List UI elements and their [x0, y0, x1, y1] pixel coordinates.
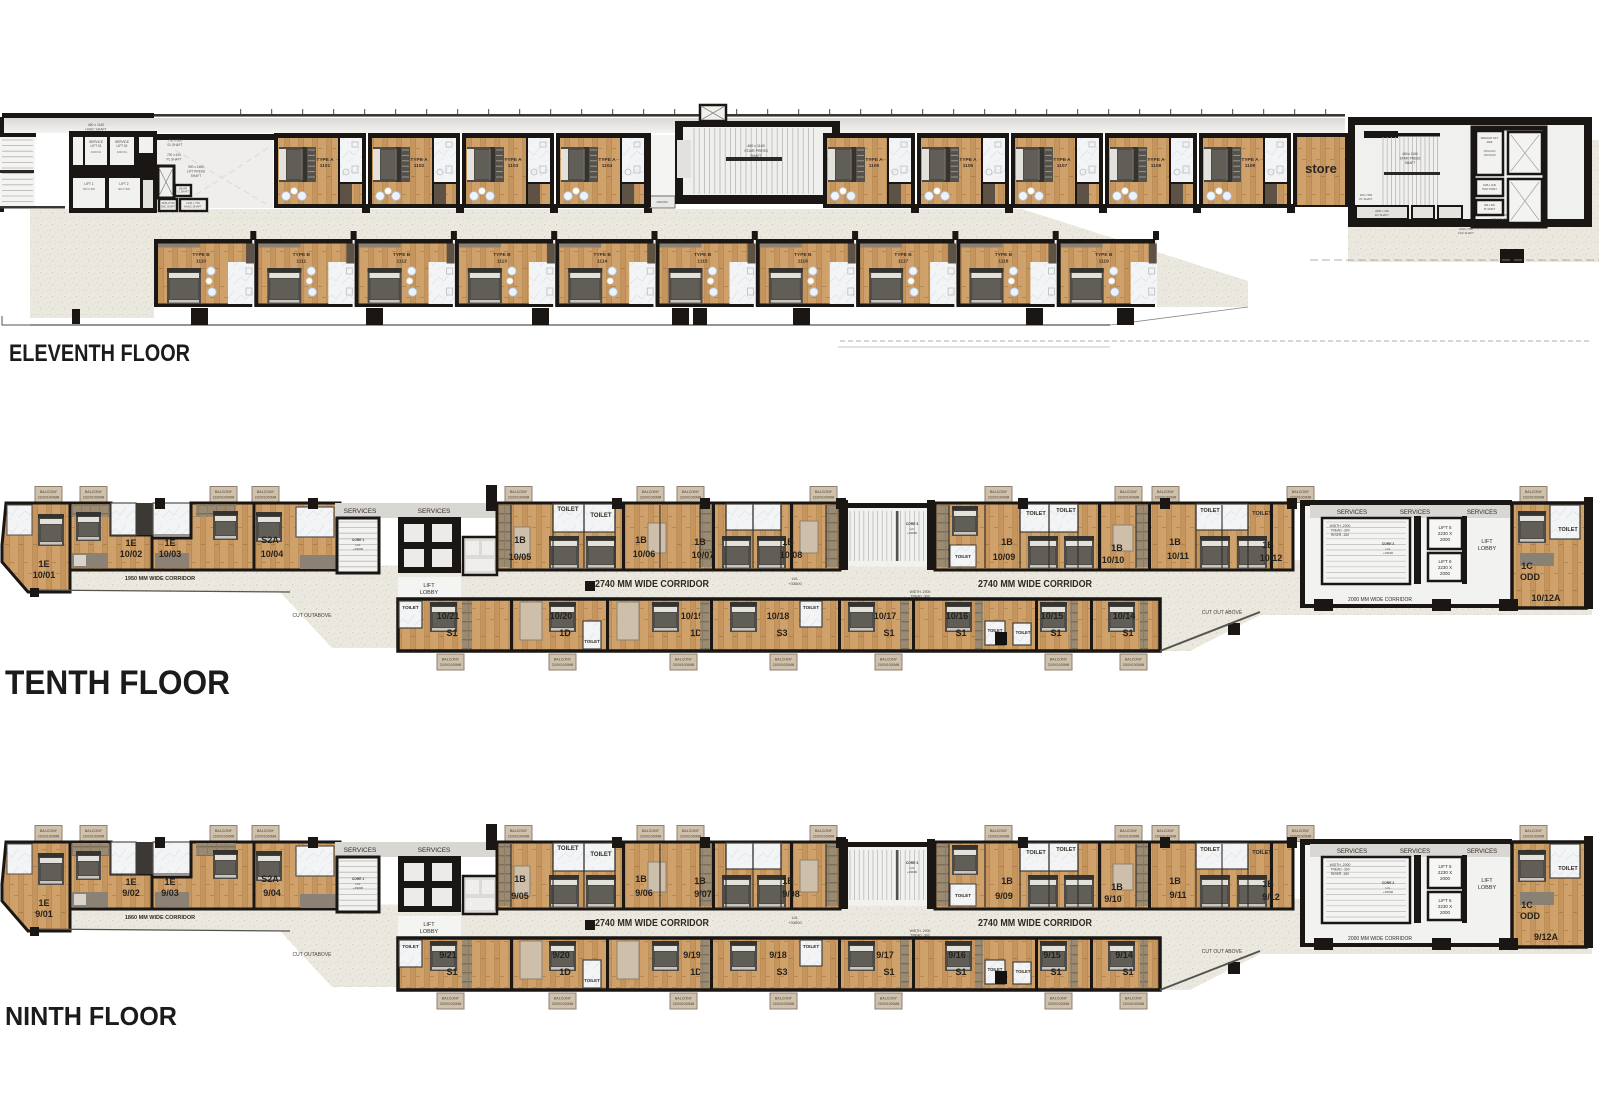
svg-text:1C: 1C	[1521, 561, 1533, 571]
svg-text:2100X1000MM: 2100X1000MM	[38, 835, 60, 839]
svg-text:2100X1000MM: 2100X1000MM	[1118, 496, 1140, 500]
svg-text:TOILET: TOILET	[1026, 511, 1046, 517]
svg-text:S1: S1	[883, 967, 894, 977]
svg-text:10/21: 10/21	[437, 611, 460, 621]
svg-text:BALCONY: BALCONY	[815, 490, 833, 494]
svg-text:1105: 1105	[869, 163, 880, 169]
svg-text:2100X1000MM: 2100X1000MM	[680, 835, 702, 839]
svg-text:BALCONY: BALCONY	[1157, 490, 1175, 494]
svg-text:TYPE B: TYPE B	[794, 252, 812, 258]
svg-text:TOILET: TOILET	[1016, 969, 1031, 974]
svg-text:1104: 1104	[602, 163, 613, 169]
svg-text:1B: 1B	[635, 874, 647, 884]
svg-text:2000: 2000	[1440, 571, 1451, 576]
svg-text:10/20: 10/20	[550, 611, 573, 621]
svg-text:TOILET: TOILET	[1056, 508, 1076, 514]
svg-text:WIDTH -2000: WIDTH -2000	[1330, 524, 1351, 528]
svg-text:2100X1000MM: 2100X1000MM	[83, 496, 105, 500]
svg-text:BALCONY: BALCONY	[642, 490, 660, 494]
svg-text:2100X1000MM: 2100X1000MM	[552, 663, 574, 667]
svg-text:2100X1000MM: 2100X1000MM	[773, 663, 795, 667]
svg-text:2100X1000MM: 2100X1000MM	[440, 663, 462, 667]
svg-text:9/14: 9/14	[1115, 950, 1133, 960]
svg-text:S1: S1	[1050, 628, 1061, 638]
svg-text:1117: 1117	[898, 259, 908, 265]
svg-text:2100X1000MM: 2100X1000MM	[255, 496, 277, 500]
svg-text:PL SHAFT: PL SHAFT	[166, 158, 181, 162]
svg-text:LIFT: LIFT	[423, 922, 435, 928]
svg-text:1360X2000: 1360X2000	[1483, 154, 1496, 157]
svg-text:CORE 1: CORE 1	[352, 538, 365, 542]
svg-text:2740 MM WIDE CORRIDOR: 2740 MM WIDE CORRIDOR	[978, 918, 1093, 929]
svg-text:1C: 1C	[1521, 900, 1533, 910]
svg-text:2100X1000MM: 2100X1000MM	[1118, 835, 1140, 839]
svg-text:1106: 1106	[963, 163, 974, 169]
svg-text:2100X1000MM: 2100X1000MM	[640, 496, 662, 500]
svg-text:1000 KG: 1000 KG	[117, 150, 127, 154]
svg-text:BALCONY: BALCONY	[85, 490, 103, 494]
svg-text:1110: 1110	[196, 259, 206, 265]
svg-text:CORE 2: CORE 2	[1382, 542, 1395, 546]
svg-text:SERVICES: SERVICES	[1467, 849, 1497, 855]
svg-text:SERVICES: SERVICES	[1337, 510, 1367, 516]
svg-text:S1: S1	[883, 628, 894, 638]
svg-text:10/12A: 10/12A	[1531, 593, 1561, 603]
svg-text:10/04: 10/04	[261, 549, 284, 559]
svg-text:1113: 1113	[497, 259, 507, 265]
svg-text:LIFT 2: LIFT 2	[119, 182, 128, 186]
svg-text:LIFT 5: LIFT 5	[1439, 525, 1452, 530]
svg-text:2100X1000MM: 2100X1000MM	[213, 835, 235, 839]
svg-text:+33000: +33000	[788, 581, 802, 586]
svg-text:1B: 1B	[1169, 537, 1181, 547]
svg-text:TOILET: TOILET	[1558, 866, 1578, 872]
svg-text:CL SHAFT: CL SHAFT	[177, 191, 189, 194]
svg-text:S3: S3	[776, 967, 787, 977]
svg-text:1060x600: 1060x600	[656, 200, 668, 204]
svg-text:BALCONY: BALCONY	[675, 997, 693, 1001]
svg-text:2230 X: 2230 X	[1438, 870, 1452, 875]
svg-text:LOBBY: LOBBY	[420, 590, 439, 596]
svg-text:LIFT: LIFT	[1481, 878, 1493, 884]
svg-text:2100X1000MM: 2100X1000MM	[255, 835, 277, 839]
svg-text:TOILET: TOILET	[1056, 847, 1076, 853]
svg-text:TOILET: TOILET	[955, 554, 971, 559]
svg-text:TOILET: TOILET	[1558, 527, 1578, 533]
svg-text:EL SHAFT: EL SHAFT	[167, 143, 182, 147]
svg-text:9/10: 9/10	[1104, 894, 1122, 904]
svg-text:1E: 1E	[38, 559, 49, 569]
svg-text:700 x 600: 700 x 600	[168, 139, 182, 143]
svg-text:BALCONY: BALCONY	[510, 829, 528, 833]
svg-text:TOILET: TOILET	[402, 944, 418, 949]
svg-text:TOILET: TOILET	[803, 605, 819, 610]
svg-text:10/01: 10/01	[33, 570, 56, 580]
svg-text:TOILET: TOILET	[1026, 850, 1046, 856]
svg-text:2230 X: 2230 X	[1438, 904, 1452, 909]
svg-text:1116: 1116	[798, 259, 808, 265]
svg-text:TYPE B: TYPE B	[1095, 252, 1113, 258]
svg-text:LIFT 6: LIFT 6	[1439, 559, 1452, 564]
svg-text:TOILET: TOILET	[1200, 508, 1220, 514]
svg-text:1E: 1E	[38, 898, 49, 908]
svg-text:CUT OUTABOVE: CUT OUTABOVE	[293, 952, 333, 958]
svg-text:900 X 900: 900 X 900	[83, 187, 95, 191]
svg-text:BALCONY: BALCONY	[1125, 997, 1143, 1001]
svg-text:9/12: 9/12	[1262, 892, 1280, 902]
svg-text:BALCONY: BALCONY	[1050, 997, 1068, 1001]
svg-text:2100X1000MM: 2100X1000MM	[878, 663, 900, 667]
svg-text:BALCONY: BALCONY	[215, 829, 233, 833]
svg-text:LOBBY: LOBBY	[1478, 546, 1497, 552]
svg-text:SERVICES: SERVICES	[418, 847, 451, 854]
svg-text:9/07: 9/07	[694, 889, 712, 899]
svg-text:BALCONY: BALCONY	[775, 658, 793, 662]
svg-text:TYPE B: TYPE B	[894, 252, 912, 258]
svg-text:TOILET: TOILET	[590, 852, 612, 858]
svg-text:9/20: 9/20	[552, 950, 570, 960]
svg-text:1B: 1B	[514, 535, 526, 545]
svg-text:TYPE A: TYPE A	[1147, 157, 1165, 163]
svg-text:1B: 1B	[1001, 876, 1013, 886]
svg-text:2740 MM WIDE CORRIDOR: 2740 MM WIDE CORRIDOR	[978, 579, 1093, 590]
svg-text:10/08: 10/08	[780, 550, 803, 560]
svg-text:1950 MM WIDE CORRIDOR: 1950 MM WIDE CORRIDOR	[125, 576, 195, 582]
svg-text:TYPE A: TYPE A	[504, 157, 522, 163]
svg-text:2100X1000MM: 2100X1000MM	[1523, 496, 1545, 500]
svg-text:TOILET: TOILET	[1252, 850, 1272, 856]
svg-text:NINTH FLOOR: NINTH FLOOR	[5, 1001, 177, 1031]
svg-text:WIDTH -2000: WIDTH -2000	[910, 929, 931, 933]
svg-text:2000 MM WIDE CORRIDOR: 2000 MM WIDE CORRIDOR	[1348, 597, 1412, 603]
svg-text:SERVICES: SERVICES	[418, 508, 451, 515]
svg-text:PL SHAFT: PL SHAFT	[1359, 197, 1373, 201]
svg-text:10/15: 10/15	[1041, 611, 1064, 621]
svg-text:WIDTH -2000: WIDTH -2000	[1330, 863, 1351, 867]
svg-text:2100X1000MM: 2100X1000MM	[1123, 1002, 1145, 1006]
svg-text:BALCONY: BALCONY	[554, 658, 572, 662]
svg-text:10/19: 10/19	[681, 611, 704, 621]
svg-text:9/12A: 9/12A	[1534, 932, 1559, 942]
svg-text:9/01: 9/01	[35, 909, 53, 919]
svg-text:STAIR PRESS: STAIR PRESS	[1400, 157, 1421, 161]
svg-text:CORE 2: CORE 2	[1382, 881, 1395, 885]
svg-text:1119: 1119	[1099, 259, 1109, 265]
svg-text:1000 KG: 1000 KG	[91, 150, 101, 154]
svg-text:BALCONY: BALCONY	[40, 490, 58, 494]
svg-text:9/16: 9/16	[948, 950, 966, 960]
svg-text:2100X1000MM: 2100X1000MM	[673, 1002, 695, 1006]
svg-text:9/11: 9/11	[1169, 890, 1186, 900]
svg-text:S1: S1	[955, 628, 966, 638]
svg-text:TYPE A: TYPE A	[598, 157, 616, 163]
svg-text:STAIR PRESS: STAIR PRESS	[744, 149, 768, 153]
svg-text:TREAD -300: TREAD -300	[1330, 529, 1349, 533]
svg-text:BALCONY: BALCONY	[880, 997, 898, 1001]
svg-text:10/16: 10/16	[946, 611, 969, 621]
svg-text:2100X1000MM: 2100X1000MM	[1123, 663, 1145, 667]
svg-text:TOILET: TOILET	[803, 944, 819, 949]
svg-text:2000: 2000	[1440, 876, 1451, 881]
svg-text:+33000: +33000	[1383, 890, 1393, 894]
svg-text:1B: 1B	[1111, 882, 1123, 892]
svg-text:FHC SHAFT: FHC SHAFT	[1458, 231, 1474, 235]
svg-text:RISER -150: RISER -150	[1331, 533, 1349, 537]
svg-text:FREIGHT LIFT: FREIGHT LIFT	[1481, 136, 1499, 140]
svg-text:2100X1000MM: 2100X1000MM	[1048, 1002, 1070, 1006]
svg-text:S1: S1	[446, 967, 457, 977]
svg-text:BALCONY: BALCONY	[990, 829, 1008, 833]
svg-text:TOILET: TOILET	[584, 639, 600, 644]
svg-text:BALCONY: BALCONY	[682, 490, 700, 494]
svg-text:9/03: 9/03	[161, 888, 179, 898]
svg-text:TOILET: TOILET	[557, 846, 579, 852]
svg-text:TYPE B: TYPE B	[694, 252, 712, 258]
svg-text:9/06: 9/06	[635, 888, 653, 898]
svg-text:1114: 1114	[597, 259, 607, 265]
svg-text:BALCONY: BALCONY	[257, 829, 275, 833]
svg-text:SERVICES: SERVICES	[1400, 510, 1430, 516]
svg-text:1B: 1B	[1262, 879, 1274, 889]
svg-text:+33000: +33000	[788, 920, 802, 925]
svg-text:2100X1000MM: 2100X1000MM	[552, 1002, 574, 1006]
svg-text:9/04: 9/04	[263, 888, 281, 898]
svg-text:EX SHAFT: EX SHAFT	[1375, 213, 1389, 217]
svg-text:2100X1000MM: 2100X1000MM	[440, 1002, 462, 1006]
svg-text:10/17: 10/17	[874, 611, 897, 621]
svg-text:CORE 3: CORE 3	[906, 861, 919, 865]
svg-text:1B: 1B	[1111, 543, 1123, 553]
svg-text:BALCONY: BALCONY	[815, 829, 833, 833]
svg-text:BALCONY: BALCONY	[257, 490, 275, 494]
svg-text:TYPE A: TYPE A	[316, 157, 334, 163]
svg-text:1102: 1102	[414, 163, 425, 169]
svg-text:TYPE A: TYPE A	[1241, 157, 1259, 163]
svg-text:LIFT 01: LIFT 01	[91, 144, 102, 148]
svg-text:9/18: 9/18	[769, 950, 787, 960]
svg-text:PL SHAFT: PL SHAFT	[1484, 208, 1496, 211]
svg-text:TOILET: TOILET	[1200, 847, 1220, 853]
svg-text:BALCONY: BALCONY	[1525, 490, 1543, 494]
svg-text:TYPE B: TYPE B	[293, 252, 311, 258]
svg-text:900 x 1600: 900 x 1600	[188, 165, 204, 169]
svg-text:2000x2400: 2000x2400	[1484, 150, 1497, 153]
svg-text:TOILET: TOILET	[1016, 630, 1031, 635]
svg-text:2100X1000MM: 2100X1000MM	[813, 496, 835, 500]
svg-text:1E: 1E	[125, 877, 136, 887]
svg-text:2100X1000MM: 2100X1000MM	[508, 496, 530, 500]
svg-text:BALCONY: BALCONY	[1525, 829, 1543, 833]
svg-text:S1: S1	[1122, 967, 1133, 977]
svg-text:1E: 1E	[125, 538, 136, 548]
svg-text:TOILET: TOILET	[557, 507, 579, 513]
svg-text:10/05: 10/05	[509, 552, 532, 562]
svg-text:1860 MM WIDE CORRIDOR: 1860 MM WIDE CORRIDOR	[125, 915, 195, 921]
svg-text:2230 X: 2230 X	[1438, 565, 1452, 570]
svg-text:TYPE B: TYPE B	[995, 252, 1013, 258]
svg-text:9/09: 9/09	[995, 891, 1013, 901]
svg-text:BALCONY: BALCONY	[1125, 658, 1143, 662]
svg-text:2100X1000MM: 2100X1000MM	[813, 835, 835, 839]
svg-text:1109: 1109	[1245, 163, 1256, 169]
svg-text:BALCONY: BALCONY	[1120, 490, 1138, 494]
svg-text:SERVICES: SERVICES	[1400, 849, 1430, 855]
svg-text:1115: 1115	[697, 259, 707, 265]
svg-text:2000: 2000	[1440, 910, 1451, 915]
svg-text:1B: 1B	[1001, 537, 1013, 547]
svg-text:CORE 3: CORE 3	[906, 522, 919, 526]
svg-text:1E: 1E	[164, 538, 175, 548]
svg-text:9/17: 9/17	[876, 950, 894, 960]
svg-text:TOILET: TOILET	[955, 893, 971, 898]
svg-text:1107: 1107	[1057, 163, 1068, 169]
svg-text:2100X1000MM: 2100X1000MM	[38, 496, 60, 500]
svg-text:1B: 1B	[1169, 876, 1181, 886]
svg-text:9/08: 9/08	[782, 889, 800, 899]
svg-text:CUT OUT ABOVE: CUT OUT ABOVE	[1202, 610, 1243, 616]
svg-text:SMC SHAFT: SMC SHAFT	[161, 206, 176, 209]
svg-text:10/14: 10/14	[1113, 611, 1136, 621]
svg-text:LOBBY: LOBBY	[1478, 885, 1497, 891]
svg-text:BALCONY: BALCONY	[1292, 490, 1310, 494]
svg-text:460 x 1160: 460 x 1160	[88, 123, 105, 127]
svg-text:460 x 1160: 460 x 1160	[747, 144, 765, 148]
svg-text:900 x 600: 900 x 600	[1484, 204, 1495, 207]
svg-text:1118: 1118	[998, 259, 1008, 265]
svg-text:1B: 1B	[782, 876, 794, 886]
svg-text:+33000: +33000	[353, 547, 363, 551]
svg-text:S1: S1	[1050, 967, 1061, 977]
svg-text:CUT OUT ABOVE: CUT OUT ABOVE	[1202, 949, 1243, 955]
svg-text:2000: 2000	[1440, 537, 1451, 542]
svg-text:LIFT: LIFT	[423, 583, 435, 589]
svg-text:HVAC SHAFT: HVAC SHAFT	[1482, 188, 1498, 191]
svg-text:LIFT 5: LIFT 5	[1439, 864, 1452, 869]
svg-text:ELEVENTH FLOOR: ELEVENTH FLOOR	[9, 340, 190, 367]
svg-text:900 X 900: 900 X 900	[118, 187, 130, 191]
svg-text:1101: 1101	[320, 163, 331, 169]
svg-text:TYPE A: TYPE A	[959, 157, 977, 163]
svg-text:BALCONY: BALCONY	[442, 658, 460, 662]
svg-text:2100X1000MM: 2100X1000MM	[680, 496, 702, 500]
svg-text:700 x 610: 700 x 610	[167, 153, 181, 157]
svg-text:store: store	[1305, 161, 1337, 176]
svg-text:TREAD -300: TREAD -300	[1330, 868, 1349, 872]
svg-text:HVAC SHAFT: HVAC SHAFT	[85, 128, 106, 132]
svg-text:2740 MM WIDE CORRIDOR: 2740 MM WIDE CORRIDOR	[595, 579, 710, 590]
svg-text:WIDTH -2000: WIDTH -2000	[910, 590, 931, 594]
svg-text:LOBBY: LOBBY	[420, 929, 439, 935]
svg-text:LIFT: LIFT	[1481, 539, 1493, 545]
svg-text:LIFT 1: LIFT 1	[84, 182, 93, 186]
svg-text:BALCONY: BALCONY	[40, 829, 58, 833]
svg-text:BALCONY: BALCONY	[880, 658, 898, 662]
svg-text:SHAFT: SHAFT	[750, 154, 763, 158]
svg-text:10/09: 10/09	[993, 552, 1016, 562]
svg-text:1103: 1103	[508, 163, 519, 169]
svg-text:BALCONY: BALCONY	[675, 658, 693, 662]
svg-text:2740 MM WIDE CORRIDOR: 2740 MM WIDE CORRIDOR	[595, 918, 710, 929]
svg-text:2100X1000MM: 2100X1000MM	[83, 835, 105, 839]
svg-text:S2A: S2A	[261, 874, 279, 884]
svg-text:BALCONY: BALCONY	[1157, 829, 1175, 833]
svg-text:LIFT 02: LIFT 02	[117, 144, 128, 148]
svg-text:9/15: 9/15	[1043, 950, 1061, 960]
svg-text:BALCONY: BALCONY	[682, 829, 700, 833]
svg-text:BALCONY: BALCONY	[990, 490, 1008, 494]
svg-text:BALCONY: BALCONY	[510, 490, 528, 494]
svg-text:SERVICES: SERVICES	[1467, 510, 1497, 516]
svg-text:9/19: 9/19	[683, 950, 701, 960]
svg-text:2100X1000MM: 2100X1000MM	[773, 1002, 795, 1006]
svg-text:TYPE A: TYPE A	[410, 157, 428, 163]
svg-text:TYPE B: TYPE B	[594, 252, 612, 258]
svg-text:1B: 1B	[1262, 540, 1274, 550]
svg-text:SERVICES: SERVICES	[344, 508, 377, 515]
svg-text:SHAFT: SHAFT	[191, 174, 202, 178]
svg-text:+33000: +33000	[353, 886, 363, 890]
svg-text:10/02: 10/02	[120, 549, 143, 559]
svg-text:+33600: +33600	[907, 870, 917, 874]
svg-text:1111: 1111	[296, 259, 306, 265]
svg-text:BALCONY: BALCONY	[215, 490, 233, 494]
svg-text:CUT OUTABOVE: CUT OUTABOVE	[293, 613, 333, 619]
svg-text:1B: 1B	[782, 537, 794, 547]
svg-text:+33000: +33000	[1383, 551, 1393, 555]
svg-text:2100X1000MM: 2100X1000MM	[213, 496, 235, 500]
svg-text:1945 x 1130: 1945 x 1130	[1483, 184, 1497, 187]
svg-text:9/05: 9/05	[511, 891, 529, 901]
svg-text:BALCONY: BALCONY	[775, 997, 793, 1001]
svg-text:1D: 1D	[559, 967, 571, 977]
svg-text:BALCONY: BALCONY	[442, 997, 460, 1001]
svg-text:BALCONY: BALCONY	[642, 829, 660, 833]
svg-text:10/18: 10/18	[767, 611, 790, 621]
svg-text:S1: S1	[1122, 628, 1133, 638]
svg-text:10/11: 10/11	[1167, 551, 1189, 561]
svg-text:TYPE A: TYPE A	[865, 157, 883, 163]
svg-text:2100X1000MM: 2100X1000MM	[508, 835, 530, 839]
svg-text:2100X1000MM: 2100X1000MM	[878, 1002, 900, 1006]
svg-text:+33600: +33600	[907, 531, 917, 535]
svg-text:LIFT 6: LIFT 6	[1439, 898, 1452, 903]
svg-text:9/21: 9/21	[439, 950, 457, 960]
svg-text:9/02: 9/02	[122, 888, 140, 898]
svg-text:HVAC SHAFT: HVAC SHAFT	[184, 205, 202, 209]
svg-text:460 x 1160: 460 x 1160	[1402, 152, 1418, 156]
svg-text:BALCONY: BALCONY	[85, 829, 103, 833]
svg-text:S2A: S2A	[261, 535, 279, 545]
svg-text:LIFT PRESS: LIFT PRESS	[187, 170, 205, 174]
svg-text:2000: 2000	[1487, 140, 1493, 144]
svg-text:TOILET: TOILET	[1252, 511, 1272, 517]
svg-text:2100X1000MM: 2100X1000MM	[640, 835, 662, 839]
svg-text:CORE 1: CORE 1	[352, 877, 365, 881]
svg-text:RISER -150: RISER -150	[1331, 872, 1349, 876]
svg-text:2230 X: 2230 X	[1438, 531, 1452, 536]
svg-text:2100X1000MM: 2100X1000MM	[1048, 663, 1070, 667]
svg-text:10/06: 10/06	[633, 549, 656, 559]
svg-text:1108: 1108	[1151, 163, 1162, 169]
svg-text:ODD: ODD	[1520, 572, 1541, 582]
svg-text:S1: S1	[955, 967, 966, 977]
svg-text:1112: 1112	[397, 259, 407, 265]
svg-text:BALCONY: BALCONY	[554, 997, 572, 1001]
svg-text:2100X1000MM: 2100X1000MM	[1523, 835, 1545, 839]
svg-text:SERVICES: SERVICES	[344, 847, 377, 854]
svg-text:1B: 1B	[514, 874, 526, 884]
svg-text:TOILET: TOILET	[402, 605, 418, 610]
